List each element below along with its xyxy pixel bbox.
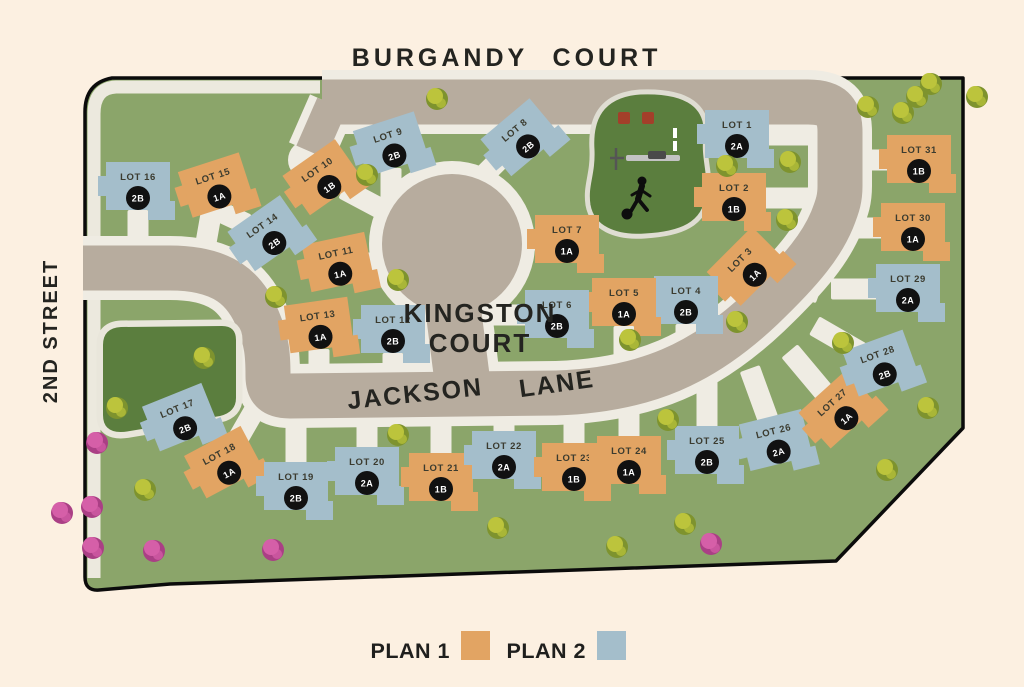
- flowering-tree-icon: [86, 432, 108, 454]
- flowering-tree-icon: [81, 496, 103, 518]
- house-footprint-ext: [403, 344, 430, 363]
- legend-plan1-label: PLAN 1: [371, 639, 450, 663]
- plan-badge-label: 2B: [290, 494, 303, 504]
- tree-icon: [606, 536, 628, 558]
- tree-icon: [426, 88, 448, 110]
- gate-marker-icon: [673, 128, 677, 138]
- tree-icon: [876, 459, 898, 481]
- plan-badge-label: 2A: [902, 296, 915, 306]
- house-footprint-ext: [331, 335, 360, 358]
- lot-number-label: LOT 7: [552, 225, 582, 236]
- street-label-2nd-street: 2ND STREET: [40, 259, 62, 403]
- plan-badge-label: 1B: [913, 167, 926, 177]
- lot-number-label: LOT 31: [901, 145, 937, 156]
- plan-badge-label: 1A: [623, 468, 636, 478]
- flowering-tree-icon: [143, 540, 165, 562]
- house-footprint-ext: [879, 149, 888, 169]
- house-footprint-ext: [98, 176, 107, 196]
- house-footprint-ext: [639, 475, 666, 494]
- site-plan-map: LOT 12ALOT 21BLOT 31ALOT 42BLOT 51ALOT 6…: [0, 0, 1024, 687]
- street-label-kingston: KINGSTON: [404, 298, 557, 328]
- lot-number-label: LOT 24: [611, 446, 647, 457]
- house-footprint-ext: [567, 329, 594, 348]
- legend-plan2-label: PLAN 2: [507, 639, 586, 663]
- plan-badge-label: 2B: [680, 308, 693, 318]
- house-footprint-ext: [256, 476, 265, 496]
- lot-number-label: LOT 25: [689, 436, 725, 447]
- house-footprint-ext: [696, 315, 723, 334]
- site-plan-svg: LOT 12ALOT 21BLOT 31ALOT 42BLOT 51ALOT 6…: [0, 0, 1024, 687]
- road-culdesac-bulb: [382, 174, 522, 314]
- lot-number-label: LOT 21: [423, 463, 459, 474]
- street-label-burgandy: BURGANDY: [352, 44, 528, 72]
- house-footprint-ext: [306, 501, 333, 520]
- plan-badge-label: 1B: [728, 205, 741, 215]
- tree-icon: [776, 209, 798, 231]
- street-label-kingston-court: COURT: [429, 328, 531, 358]
- lot-number-label: LOT 29: [890, 274, 926, 285]
- tree-icon: [966, 86, 988, 108]
- house-footprint-ext: [401, 467, 410, 487]
- tree-icon: [487, 517, 509, 539]
- tree-icon: [657, 409, 679, 431]
- house-footprint-ext: [451, 492, 478, 511]
- lot-number-label: LOT 30: [895, 213, 931, 224]
- tree-icon: [387, 269, 409, 291]
- house-footprint-ext: [694, 187, 703, 207]
- lot-number-label: LOT 1: [722, 120, 752, 131]
- tree-icon: [387, 424, 409, 446]
- lot-number-label: LOT 20: [349, 457, 385, 468]
- plan-badge-label: 1A: [907, 235, 920, 245]
- lot-number-label: LOT 16: [120, 172, 156, 183]
- house-footprint-ext: [327, 461, 336, 481]
- house-footprint-ext: [744, 212, 771, 231]
- house-footprint-ext: [377, 486, 404, 505]
- plan-badge-label: 1B: [568, 475, 581, 485]
- tree-icon: [917, 397, 939, 419]
- house-footprint-ext: [929, 174, 956, 193]
- house-footprint-ext: [148, 201, 175, 220]
- lot-number-label: LOT 4: [671, 286, 701, 297]
- house-footprint-ext: [584, 482, 611, 501]
- flowering-tree-icon: [262, 539, 284, 561]
- tree-icon: [920, 73, 942, 95]
- plan-badge-label: 1A: [561, 247, 574, 257]
- lot-number-label: LOT 5: [609, 288, 639, 299]
- bench-icon: [642, 112, 654, 124]
- flowering-tree-icon: [700, 533, 722, 555]
- house-footprint-ext: [923, 242, 950, 261]
- house-footprint-ext: [717, 465, 744, 484]
- tree-icon: [832, 332, 854, 354]
- plan-badge-label: 2B: [701, 458, 714, 468]
- tree-icon: [857, 96, 879, 118]
- lot-number-label: LOT 22: [486, 441, 522, 452]
- plan-badge-label: 1A: [618, 310, 631, 320]
- house-footprint-ext: [918, 303, 945, 322]
- house-footprint-ext: [747, 149, 774, 168]
- flowering-tree-icon: [51, 502, 73, 524]
- plan-badge-label: 1A: [314, 332, 328, 344]
- street-label-court: COURT: [553, 44, 662, 72]
- house-footprint-ext: [534, 457, 543, 477]
- tree-icon: [106, 397, 128, 419]
- house-footprint-ext: [873, 217, 882, 237]
- house-footprint-ext: [667, 440, 676, 460]
- gate-marker-icon: [673, 141, 677, 151]
- tree-icon: [779, 151, 801, 173]
- house-footprint-ext: [697, 124, 706, 144]
- legend-plan2-swatch: [597, 631, 626, 660]
- house-footprint-ext: [868, 278, 877, 298]
- bench-icon: [618, 112, 630, 124]
- house-footprint-ext: [527, 229, 536, 249]
- tree-icon: [265, 286, 287, 308]
- lot-number-label: LOT 23: [556, 453, 592, 464]
- plan-badge-label: 2B: [132, 194, 145, 204]
- tree-icon: [193, 347, 215, 369]
- plan-badge-label: 2A: [498, 463, 511, 473]
- tree-icon: [716, 155, 738, 177]
- lot-number-label: LOT 19: [278, 472, 314, 483]
- tree-icon: [134, 479, 156, 501]
- legend-plan1-swatch: [461, 631, 490, 660]
- plan-badge-label: 1B: [435, 485, 448, 495]
- plan-badge-label: 2A: [361, 479, 374, 489]
- flowering-tree-icon: [82, 537, 104, 559]
- tree-icon: [619, 329, 641, 351]
- plan-badge-label: 2B: [387, 337, 400, 347]
- tree-icon: [674, 513, 696, 535]
- house-footprint-ext: [464, 445, 473, 465]
- house-footprint-ext: [589, 450, 598, 470]
- driveway: [697, 374, 718, 428]
- house-footprint-ext: [577, 254, 604, 273]
- tree-icon: [726, 311, 748, 333]
- lot-number-label: LOT 2: [719, 183, 749, 194]
- tree-icon: [356, 164, 378, 186]
- plan-badge-label: 2A: [731, 142, 744, 152]
